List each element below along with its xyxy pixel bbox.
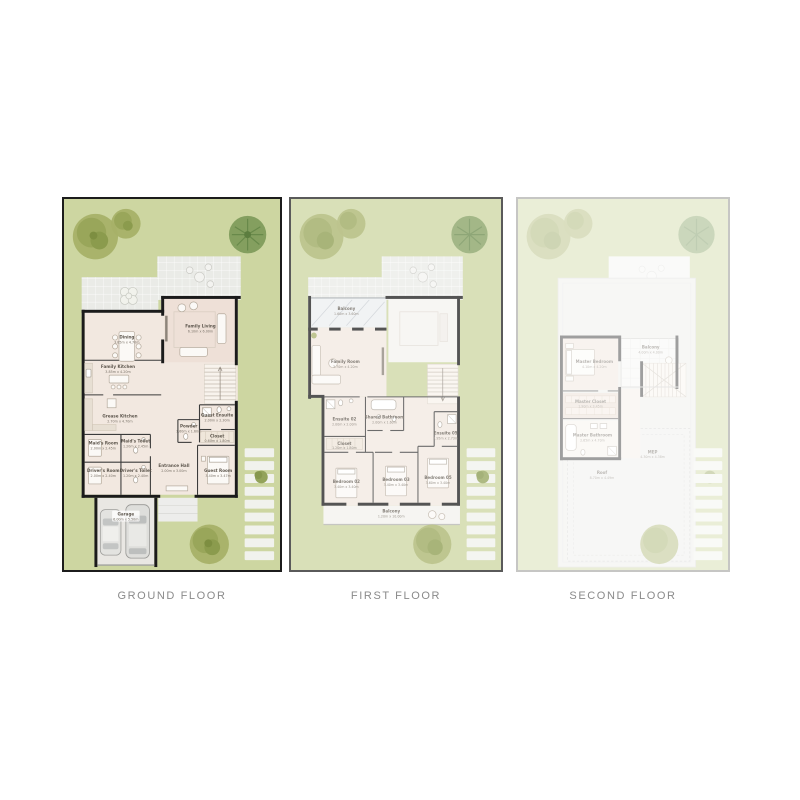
room-label-bedroom-03: Bedroom 03 (382, 477, 409, 482)
room-label-mep: MEP (648, 449, 658, 454)
patio-plant (120, 287, 137, 304)
room-label-ensuite-02: Ensuite 02 (333, 417, 357, 422)
second-floor-drawing: Master Bedroom 4.10m x 4.20m Balcony 4.0… (518, 199, 728, 570)
svg-text:3.85m x 4.70m: 3.85m x 4.70m (114, 340, 139, 344)
first-floor-plan: Balcony 1.60m x 3.60m Family Room 3.70m … (289, 197, 503, 572)
garden-path (467, 448, 496, 560)
room-label-garage: Garage (118, 512, 135, 517)
caption-second-floor: SECOND FLOOR (516, 590, 730, 604)
room-label-drivers-toilet: Driver's Toilet (120, 468, 152, 473)
room-label-bedroom-02: Bedroom 02 (333, 479, 360, 484)
room-label-family-living: Family Living (185, 324, 216, 329)
svg-text:4.10m x 4.20m: 4.10m x 4.20m (582, 365, 607, 369)
room-label-shared-bathroom: Shared Bathroom (365, 415, 405, 420)
room-label-powder: Powder (180, 424, 198, 429)
svg-text:6.10m x 6.00m: 6.10m x 6.00m (188, 330, 213, 334)
room-label-closet: Closet (210, 433, 224, 438)
tree (111, 209, 140, 239)
powder-toilet (184, 433, 188, 439)
svg-text:1.20m x 1.80m: 1.20m x 1.80m (332, 446, 357, 450)
kitchen-sink (86, 369, 91, 377)
landing (621, 389, 640, 458)
room-label-master-closet: Master Closet (575, 399, 606, 404)
svg-text:2.00m x 2.30m: 2.00m x 2.30m (204, 419, 229, 423)
room-label-entrance-hall: Entrance Hall (158, 463, 190, 468)
svg-text:2.65m x 4.70m: 2.65m x 4.70m (580, 438, 605, 442)
room-label-dining: Dining (119, 334, 134, 339)
svg-text:4.30m x 4.38m: 4.30m x 4.38m (640, 455, 665, 459)
svg-text:1.20m x 2.40m: 1.20m x 2.40m (123, 474, 148, 478)
second-floor-plan: Master Bedroom 4.10m x 4.20m Balcony 4.0… (516, 197, 730, 572)
svg-text:0.60m x 1.80m: 0.60m x 1.80m (204, 439, 229, 443)
svg-text:3.60m x 3.40m: 3.60m x 3.40m (426, 481, 451, 485)
caption-ground-floor: GROUND FLOOR (62, 590, 282, 604)
room-label-balcony: Balcony (642, 344, 660, 349)
entry-steps (158, 498, 197, 522)
svg-text:2.00m x 2.45m: 2.00m x 2.45m (91, 446, 116, 450)
svg-text:3.85m x 4.20m: 3.85m x 4.20m (105, 370, 130, 374)
svg-text:4.00m x 4.00m: 4.00m x 4.00m (638, 350, 663, 354)
svg-text:6.00m x 5.50m: 6.00m x 5.50m (113, 518, 138, 522)
room-label-balcony-top: Balcony (338, 306, 356, 311)
ground-floor-plan: Dining 3.85m x 4.70m Family Living 6.10m… (62, 197, 282, 572)
tv-unit (165, 316, 167, 342)
svg-text:2.00m x 2.00m: 2.00m x 2.00m (332, 423, 357, 427)
svg-text:2.00m x 1.60m: 2.00m x 1.60m (372, 421, 397, 425)
room-label-family-kitchen: Family Kitchen (101, 364, 135, 369)
room-label-guest-room: Guest Room (204, 468, 232, 473)
toilet (581, 449, 585, 455)
fridge (107, 399, 116, 408)
palm-tree (229, 216, 266, 254)
svg-text:3.40m x 3.40m: 3.40m x 3.40m (334, 485, 359, 489)
kitchen-counter (85, 363, 93, 393)
room-label-bedroom-05: Bedroom 05 (424, 475, 451, 480)
svg-text:2.00m x 3.00m: 2.00m x 3.00m (161, 469, 186, 473)
room-label-maids-room: Maid's Room (89, 440, 118, 445)
room-label-grease-kitchen: Grease Kitchen (102, 414, 137, 419)
room-label-master-bathroom: Master Bathroom (573, 432, 612, 437)
staircase (642, 363, 686, 397)
garden-path (245, 448, 274, 560)
svg-text:1.95m x 2.73m: 1.95m x 2.73m (433, 436, 458, 440)
svg-text:3.40m x 3.40m: 3.40m x 3.40m (384, 483, 409, 487)
svg-text:1.20m x 10.00m: 1.20m x 10.00m (378, 515, 405, 519)
svg-text:3.40m x 3.47m: 3.40m x 3.47m (205, 474, 230, 478)
room-label-drivers-room: Driver's Room (87, 468, 120, 473)
room-label-family-room: Family Room (331, 359, 360, 364)
sofa (217, 314, 226, 344)
floor-plans-page: Dining 3.85m x 4.70m Family Living 6.10m… (0, 0, 800, 800)
ground-floor-drawing: Dining 3.85m x 4.70m Family Living 6.10m… (64, 199, 280, 570)
svg-text:1.60m x 1.60m: 1.60m x 1.60m (176, 429, 201, 433)
room-label-ensuite-05: Ensuite 05 (434, 430, 458, 435)
room-label-roof: Roof (597, 470, 608, 475)
staircase (204, 364, 235, 404)
console (166, 486, 188, 491)
svg-text:1.20m x 2.45m: 1.20m x 2.45m (123, 444, 148, 448)
svg-text:1.60m x 3.60m: 1.60m x 3.60m (334, 312, 359, 316)
tree (190, 524, 229, 564)
room-label-balcony-bottom: Balcony (382, 509, 400, 514)
bathtub (371, 400, 396, 410)
tv-unit (382, 347, 384, 375)
sofa (312, 345, 321, 377)
room-label-maids-toilet: Maid's Toilet (121, 438, 150, 443)
svg-text:1.90m x 3.45m: 1.90m x 3.45m (578, 404, 603, 408)
svg-text:2.70m x 4.70m: 2.70m x 4.70m (107, 420, 132, 424)
first-floor-drawing: Balcony 1.60m x 3.60m Family Room 3.70m … (291, 199, 501, 570)
kitchen-island (109, 375, 129, 383)
svg-text:2.00m x 2.40m: 2.00m x 2.40m (91, 474, 116, 478)
garden-path (694, 448, 723, 560)
room-label-master-bedroom: Master Bedroom (576, 359, 613, 364)
caption-first-floor: FIRST FLOOR (289, 590, 503, 604)
tree (73, 214, 118, 260)
svg-text:3.70m x 4.20m: 3.70m x 4.20m (333, 365, 358, 369)
svg-text:8.70m x 4.49m: 8.70m x 4.49m (590, 476, 615, 480)
staircase (428, 364, 459, 404)
room-label-guest-ensuite: Guest Ensuite (201, 413, 233, 418)
